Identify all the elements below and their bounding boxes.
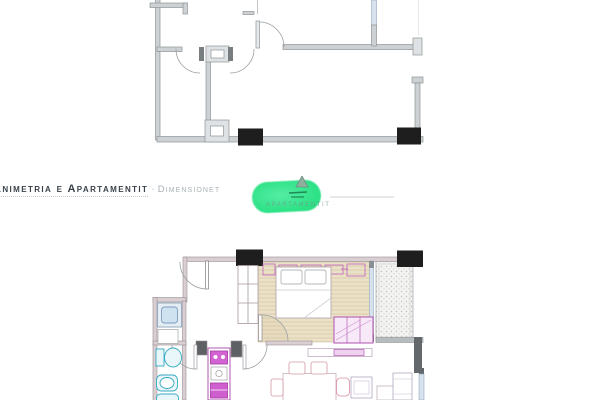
watermark-text: APARTAMENTIT <box>266 202 331 208</box>
living-window <box>419 374 424 400</box>
window <box>372 0 377 46</box>
pier-and-shaft <box>199 46 233 142</box>
dining-set <box>271 362 350 400</box>
balcony <box>376 261 413 341</box>
bed <box>276 267 331 318</box>
tv-shelf <box>308 349 372 357</box>
page: Animetria e Apartamentit·Dimensionet APA… <box>0 0 600 400</box>
bathroom-fixtures <box>156 303 182 400</box>
kitchen-unit <box>208 348 230 400</box>
pointer-triangle-icon <box>295 176 309 188</box>
section-subtitle-text: Dimensionet <box>158 184 221 195</box>
living-set <box>351 373 412 400</box>
logo-mark <box>287 189 313 201</box>
wardrobe <box>238 266 258 324</box>
section-title: Animetria e Apartamentit·Dimensionet <box>0 179 220 197</box>
section-title-text: Animetria e Apartamentit <box>0 183 148 197</box>
title-separator: · <box>151 184 154 195</box>
divider-line <box>330 196 394 198</box>
top-floor-plan <box>150 0 423 146</box>
bottom-floor-plan <box>153 250 424 400</box>
dresser <box>334 317 373 343</box>
